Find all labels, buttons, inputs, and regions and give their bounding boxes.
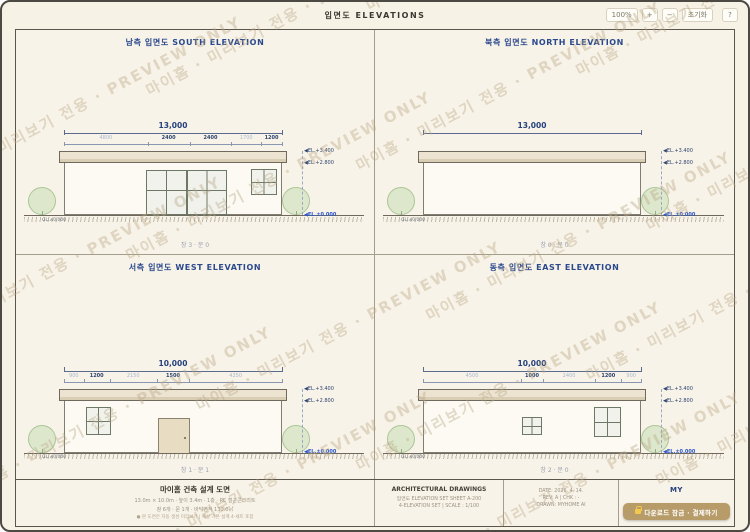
segment-dimension-label: 4250 [229, 373, 242, 379]
zoom-out-button[interactable]: − [662, 8, 678, 22]
segment-dimension-label: 4800 [99, 135, 112, 141]
elevation-marker-line [302, 389, 303, 453]
ground-level-label: GL.±0.000 [42, 455, 66, 460]
zoom-controls: 100% + − 초기화 ? [606, 8, 738, 22]
window [86, 407, 111, 435]
dimension-tick [641, 367, 642, 372]
elevation-marker-label: ◀EL.+3.400 [663, 148, 693, 154]
segment-tick [423, 379, 424, 383]
drawings-heading: ARCHITECTURAL DRAWINGS [375, 486, 503, 493]
segment-tick [282, 379, 283, 383]
segment-tick [84, 379, 85, 383]
dimension-tick [282, 367, 283, 372]
opening-count-caption: 창 3 · 문 0 [16, 240, 374, 249]
tree-trunk [42, 449, 43, 453]
segment-tick [621, 379, 622, 383]
project-title: 마이홈 건축 설계 도면 [16, 484, 374, 495]
title-block-meta-cell: DATE: 2026. 4. 14. REV: A | CHK : - DRAW… [504, 480, 619, 526]
segment-dimension-line [423, 382, 641, 383]
elevation-marker-label: ◀EL.+2.800 [304, 160, 334, 166]
ground-level-label: GL.±0.000 [42, 218, 66, 223]
window [594, 407, 621, 437]
drawings-sheet-line: 입면도 ELEVATION SET SHEET A-200 [375, 495, 503, 502]
segment-dimension-label: 1500 [166, 373, 180, 379]
segment-tick [110, 379, 111, 383]
lock-icon [635, 509, 641, 514]
total-dimension-label: 13,000 [423, 121, 641, 130]
opening-count-caption: 창 1 · 문 1 [16, 465, 374, 474]
meta-drawn: DRAWN: MYHOME AI [504, 503, 618, 508]
segment-dimension-label: 2400 [162, 135, 176, 141]
panel-east-elevation: 동측 입면도 EAST ELEVATION10,0004500100024001… [375, 255, 734, 480]
tree-trunk [655, 211, 656, 215]
segment-tick [543, 379, 544, 383]
segment-tick [190, 142, 191, 146]
total-dimension-line [64, 371, 282, 372]
window [187, 170, 227, 215]
elevation-drawing: 13,000◀EL.+3.400◀EL.+2.800◀EL.±0.000GL.±… [375, 123, 734, 233]
total-dimension-line [423, 371, 641, 372]
segment-tick [282, 142, 283, 146]
tree-trunk [655, 449, 656, 453]
segment-dimension-label: 1000 [525, 373, 539, 379]
opening-count-caption: 창 2 · 문 0 [375, 465, 734, 474]
brand-logo: MY [619, 486, 734, 494]
door [158, 418, 191, 453]
title-block-project-cell: 마이홈 건축 설계 도면 13.0m × 10.0m · 높이 3.4m · 1… [16, 480, 375, 526]
elevation-title: 동측 입면도 EAST ELEVATION [375, 262, 734, 273]
segment-dimension-label: 1200 [265, 135, 279, 141]
title-block: 마이홈 건축 설계 도면 13.0m × 10.0m · 높이 3.4m · 1… [16, 479, 734, 526]
total-dimension-line [423, 133, 641, 134]
roof-slab [418, 389, 646, 401]
opening-count-caption: 창 0 · 문 0 [375, 240, 734, 249]
elevation-marker-label: ◀EL.+2.800 [663, 398, 693, 404]
segment-dimension-label: 1700 [240, 135, 253, 141]
help-button[interactable]: ? [722, 8, 738, 22]
panel-south-elevation: 남측 입면도 SOUTH ELEVATION13,000480024002400… [16, 30, 375, 255]
segment-tick [64, 379, 65, 383]
elevation-marker-label: ◀EL.+3.400 [663, 386, 693, 392]
dimension-tick [641, 130, 642, 135]
project-counts-line: 창 6개 · 문 1개 · 바닥면적 130.0㎡ [16, 506, 374, 513]
dimension-tick [64, 130, 65, 135]
segment-dimension-label: 2400 [204, 135, 218, 141]
ground-elevation-label: ◀EL.±0.000 [663, 449, 695, 455]
ground-elevation-label: ◀EL.±0.000 [663, 212, 695, 218]
total-dimension-label: 13,000 [64, 121, 282, 130]
tree-trunk [42, 211, 43, 215]
download-pay-label: 다운로드 잠금 · 결제하기 [644, 507, 717, 517]
segment-tick [189, 379, 190, 383]
elevation-marker-line [661, 389, 662, 453]
meta-date: DATE: 2026. 4. 14. [504, 489, 618, 494]
segment-tick [595, 379, 596, 383]
roof-slab [418, 151, 646, 163]
segment-dimension-label: 1200 [90, 373, 104, 379]
segment-dimension-label: 900 [626, 373, 636, 379]
tree-trunk [401, 211, 402, 215]
total-dimension-label: 10,000 [423, 359, 641, 368]
elevation-marker-line [661, 151, 662, 215]
tree-trunk [296, 449, 297, 453]
total-dimension-label: 10,000 [64, 359, 282, 368]
dimension-tick [423, 367, 424, 372]
ground-elevation-label: ◀EL.±0.000 [304, 212, 336, 218]
zoom-in-button[interactable]: + [642, 8, 658, 22]
elevation-marker-label: ◀EL.+3.400 [304, 386, 334, 392]
segment-tick [261, 142, 262, 146]
roof-slab [59, 151, 287, 163]
segment-tick [231, 142, 232, 146]
segment-tick [148, 142, 149, 146]
segment-dimension-label: 2150 [127, 373, 140, 379]
ground-level-label: GL.±0.000 [401, 455, 425, 460]
panel-north-elevation: 북측 입면도 NORTH ELEVATION13,000◀EL.+3.400◀E… [375, 30, 734, 255]
door-knob [184, 437, 186, 439]
reset-view-button[interactable]: 초기화 [682, 8, 713, 22]
segment-dimension-label: 2400 [563, 373, 576, 379]
elevation-marker-label: ◀EL.+3.400 [304, 148, 334, 154]
segment-dimension-label: 4500 [466, 373, 479, 379]
project-specs-line: 13.0m × 10.0m · 높이 3.4m · 1층 · RC 철근콘크리트 [16, 497, 374, 504]
elevation-marker-label: ◀EL.+2.800 [304, 398, 334, 404]
segment-dimension-label: 900 [69, 373, 79, 379]
total-dimension-line [64, 133, 282, 134]
download-pay-button[interactable]: 다운로드 잠금 · 결제하기 [623, 503, 730, 520]
window [251, 169, 277, 195]
elevation-grid[interactable]: 남측 입면도 SOUTH ELEVATION13,000480024002400… [16, 30, 734, 479]
window [522, 417, 543, 435]
elevation-title: 북측 입면도 NORTH ELEVATION [375, 37, 734, 48]
zoom-level-indicator[interactable]: 100% [606, 8, 638, 22]
drawing-viewer-window: 입면도 ELEVATIONS 100% + − 초기화 ? 남측 입면도 SOU… [0, 0, 750, 532]
panel-west-elevation: 서측 입면도 WEST ELEVATION10,0009001200215015… [16, 255, 375, 480]
title-block-logo-cell: MY 다운로드 잠금 · 결제하기 [619, 480, 734, 526]
ground-elevation-label: ◀EL.±0.000 [304, 449, 336, 455]
elevation-marker-label: ◀EL.+2.800 [663, 160, 693, 166]
tree-trunk [296, 211, 297, 215]
elevation-drawing: 10,0004500100024001200900◀EL.+3.400◀EL.+… [375, 361, 734, 471]
meta-rev: REV: A | CHK : - [504, 496, 618, 501]
segment-dimension-label: 1200 [601, 373, 615, 379]
roof-slab [59, 389, 287, 401]
title-block-drawings-cell: ARCHITECTURAL DRAWINGS 입면도 ELEVATION SET… [375, 480, 504, 526]
segment-tick [64, 142, 65, 146]
segment-tick [641, 379, 642, 383]
segment-tick [157, 379, 158, 383]
segment-tick [521, 379, 522, 383]
elevation-drawing: 13,00048002400240017001200◀EL.+3.400◀EL.… [16, 123, 374, 233]
segment-dimension-line [64, 382, 282, 383]
project-note-line: ● 본 도면은 자동 생성 미리보기 | 예상 기본 설계 4-세트 포함 [16, 514, 374, 520]
tree-trunk [401, 449, 402, 453]
dimension-tick [423, 130, 424, 135]
segment-dimension-line [64, 144, 282, 145]
elevation-drawing: 10,0009001200215015004250◀EL.+3.400◀EL.+… [16, 361, 374, 471]
elevation-marker-line [302, 151, 303, 215]
building-wall [423, 163, 641, 215]
drawings-scale-line: 4-ELEVATION SET | SCALE : 1/100 [375, 504, 503, 509]
elevation-title: 남측 입면도 SOUTH ELEVATION [16, 37, 374, 48]
toolbar: 입면도 ELEVATIONS 100% + − 초기화 ? [2, 2, 748, 29]
elevation-title: 서측 입면도 WEST ELEVATION [16, 262, 374, 273]
dimension-tick [64, 367, 65, 372]
ground-level-label: GL.±0.000 [401, 218, 425, 223]
dimension-tick [282, 130, 283, 135]
sheet-frame: 남측 입면도 SOUTH ELEVATION13,000480024002400… [15, 29, 735, 527]
window [146, 170, 186, 215]
